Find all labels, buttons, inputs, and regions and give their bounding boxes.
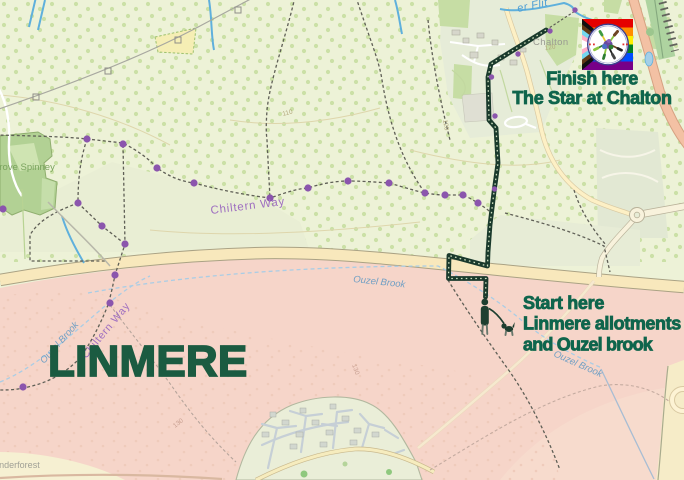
svg-text:Wanderforest: Wanderforest bbox=[0, 460, 40, 470]
svg-text:Finish here: Finish here bbox=[546, 69, 638, 89]
svg-text:Linmere allotments: Linmere allotments bbox=[523, 314, 681, 334]
svg-text:Start here: Start here bbox=[523, 293, 604, 313]
svg-text:Grove Spinney: Grove Spinney bbox=[0, 162, 55, 173]
svg-text:and Ouzel brook: and Ouzel brook bbox=[523, 335, 654, 355]
svg-text:The Star at Chalton: The Star at Chalton bbox=[512, 88, 671, 108]
svg-text:LINMERE: LINMERE bbox=[48, 337, 247, 386]
